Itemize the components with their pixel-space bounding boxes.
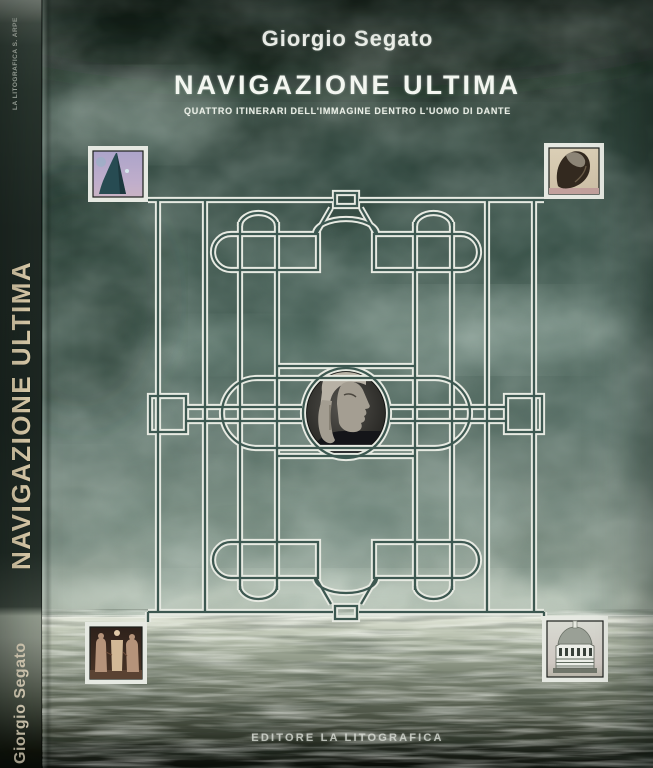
corner-artwork-bottom-left bbox=[85, 622, 147, 684]
author-name: Giorgio Segato bbox=[42, 26, 653, 52]
book-cover-photo: LA LITOGRAFICA S. ARPE NAVIGAZIONE ULTIM… bbox=[0, 0, 653, 768]
book-title: NAVIGAZIONE ULTIMA bbox=[42, 70, 653, 101]
spine-title-text: NAVIGAZIONE ULTIMA bbox=[6, 261, 37, 570]
publisher-line: EDITORE LA LITOGRAFICA bbox=[42, 732, 653, 744]
spine-author-text: Giorgio Segato bbox=[12, 642, 30, 764]
book-subtitle: QUATTRO ITINERARI DELL'IMMAGINE DENTRO L… bbox=[42, 106, 653, 116]
spine-imprint-text: LA LITOGRAFICA S. ARPE bbox=[12, 17, 19, 110]
corner-artwork-bottom-right bbox=[542, 616, 608, 682]
corner-artwork-top-left bbox=[88, 146, 148, 202]
corner-artwork-top-right bbox=[544, 143, 604, 199]
